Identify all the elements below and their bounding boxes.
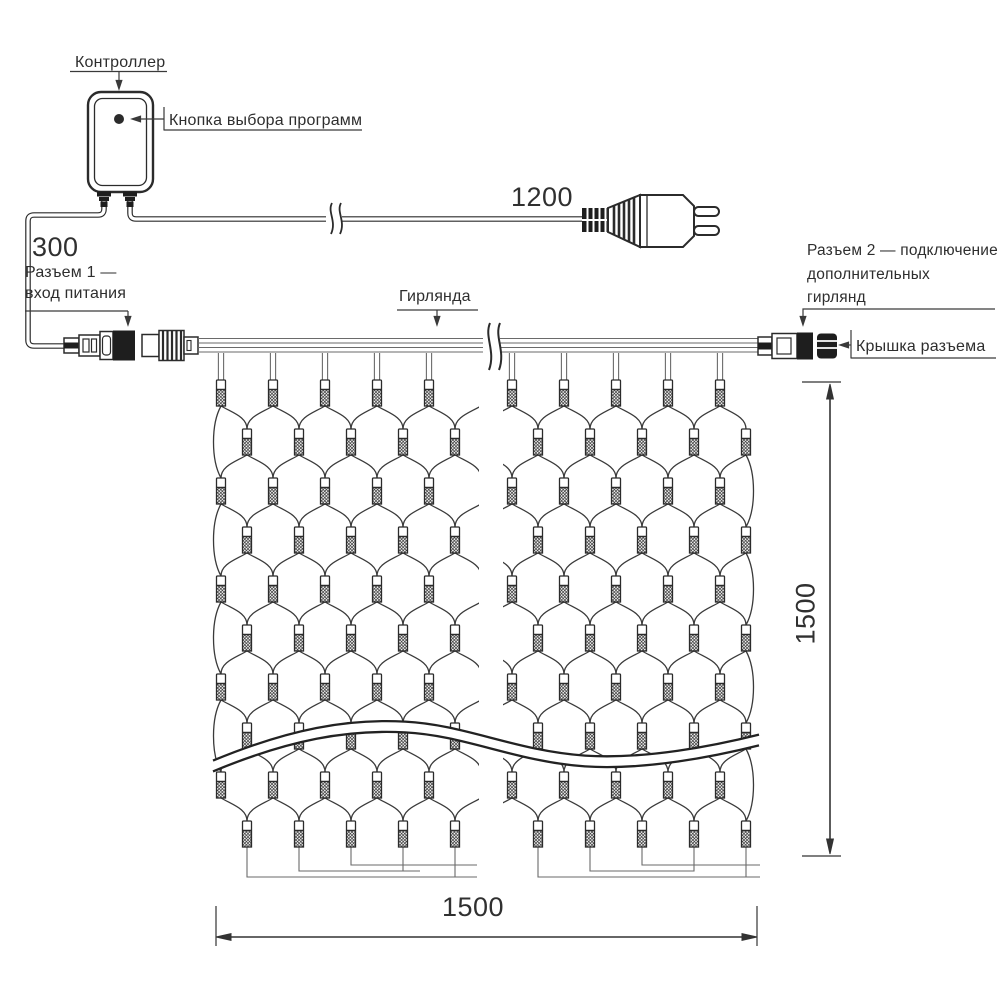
led-node [451, 429, 460, 455]
led-node [321, 576, 330, 602]
led-node [508, 380, 517, 406]
led-node [243, 429, 252, 455]
arrow-down-icon [800, 317, 806, 326]
plug-pin-top [694, 207, 719, 216]
led-node [269, 576, 278, 602]
led-node [742, 429, 751, 455]
power-plug [582, 195, 719, 247]
led-node [243, 821, 252, 847]
led-node [321, 772, 330, 798]
plug-pin-bottom [694, 226, 719, 235]
led-node [269, 380, 278, 406]
led-node [243, 625, 252, 651]
connector-cap-label: Крышка разъема [856, 336, 985, 357]
program-button-dot[interactable] [114, 114, 124, 124]
led-node [399, 821, 408, 847]
led-node [347, 527, 356, 553]
led-node [508, 576, 517, 602]
led-node [508, 772, 517, 798]
led-node [425, 576, 434, 602]
led-node [373, 772, 382, 798]
led-node [373, 380, 382, 406]
led-node [399, 527, 408, 553]
led-node [534, 527, 543, 553]
connector1-label: Разъем 1 — вход питания [25, 262, 126, 304]
garland-leader [397, 310, 478, 325]
controller-leader [70, 72, 167, 90]
led-node [425, 380, 434, 406]
controller-cable-glands [97, 192, 137, 208]
led-node [269, 772, 278, 798]
led-node [295, 527, 304, 553]
connector-1-thread [113, 331, 135, 361]
led-node [612, 772, 621, 798]
led-node [664, 478, 673, 504]
program-button-label: Кнопка выбора программ [169, 110, 362, 131]
led-node [534, 429, 543, 455]
led-node [664, 380, 673, 406]
connector2-label: Разъем 2 — подключение дополнительных ги… [807, 239, 998, 310]
led-node [269, 674, 278, 700]
garland-diagram: Контроллер Кнопка выбора программ 1200 3… [0, 0, 1000, 1000]
garland-cable-break-icon [483, 323, 501, 370]
led-node [451, 821, 460, 847]
connector-2 [758, 333, 837, 360]
led-node [451, 625, 460, 651]
led-node [586, 821, 595, 847]
led-node [638, 723, 647, 749]
connector-1 [64, 331, 135, 361]
led-node [638, 527, 647, 553]
led-node [425, 772, 434, 798]
led-node [690, 429, 699, 455]
led-node [399, 429, 408, 455]
led-node [690, 821, 699, 847]
led-node [217, 380, 226, 406]
controller [88, 92, 153, 207]
led-node [742, 527, 751, 553]
led-node [217, 772, 226, 798]
led-node [321, 478, 330, 504]
led-node [560, 772, 569, 798]
led-node [716, 478, 725, 504]
led-node [586, 625, 595, 651]
led-node [534, 625, 543, 651]
led-node [560, 576, 569, 602]
led-node [243, 527, 252, 553]
led-node [321, 674, 330, 700]
arrow-left-icon [840, 342, 849, 348]
led-node [425, 478, 434, 504]
arrow-down-icon [116, 81, 122, 90]
arrow-down-icon [434, 317, 440, 326]
led-node [638, 821, 647, 847]
led-node [373, 478, 382, 504]
connector-2-thread [797, 333, 813, 360]
led-node [690, 723, 699, 749]
led-node [716, 772, 725, 798]
led-node [716, 380, 725, 406]
garland-label: Гирлянда [399, 286, 471, 307]
led-node [586, 527, 595, 553]
led-node [716, 576, 725, 602]
led-node [612, 576, 621, 602]
led-node [560, 380, 569, 406]
led-node [451, 527, 460, 553]
led-node [534, 723, 543, 749]
led-node [347, 821, 356, 847]
net-height-dimension: 1500 [791, 554, 822, 674]
led-node [295, 429, 304, 455]
led-node [664, 576, 673, 602]
led-node [425, 674, 434, 700]
led-node [560, 478, 569, 504]
connector-cap[interactable] [817, 334, 837, 359]
led-node [269, 478, 278, 504]
garland-net-left [214, 353, 482, 877]
led-node [534, 821, 543, 847]
power-cord-length-label: 1200 [511, 182, 573, 213]
led-node [373, 674, 382, 700]
led-node [664, 772, 673, 798]
arrow-up-icon [827, 384, 834, 399]
net-width-dimension: 1500 [403, 892, 543, 923]
connector1-leader [25, 311, 131, 325]
led-node [612, 478, 621, 504]
led-node [638, 429, 647, 455]
garland-net-right [486, 353, 760, 877]
connector-1-mate [142, 331, 198, 361]
led-node [664, 674, 673, 700]
led-node [321, 380, 330, 406]
led-node [742, 821, 751, 847]
connector2-leader [800, 309, 995, 325]
led-node [243, 723, 252, 749]
led-node [217, 674, 226, 700]
input-cord-length-label: 300 [32, 232, 79, 263]
led-node [690, 625, 699, 651]
arrow-left-icon [216, 934, 231, 941]
led-node [217, 576, 226, 602]
led-node [347, 625, 356, 651]
led-node [716, 674, 725, 700]
led-node [347, 429, 356, 455]
led-node [690, 527, 699, 553]
power-cable-break-icon [326, 203, 342, 234]
led-node [295, 625, 304, 651]
led-node [373, 576, 382, 602]
arrow-down-icon [125, 317, 131, 326]
led-node [586, 723, 595, 749]
arrow-down-icon [827, 839, 834, 854]
led-node [399, 625, 408, 651]
arrow-right-icon [742, 934, 757, 941]
plug-strain-relief [582, 208, 608, 232]
garland-cable [198, 339, 758, 353]
led-node [508, 674, 517, 700]
controller-label: Контроллер [75, 52, 165, 73]
led-node [508, 478, 517, 504]
led-node [586, 429, 595, 455]
led-node [638, 625, 647, 651]
led-node [742, 625, 751, 651]
led-node [295, 821, 304, 847]
led-node [612, 674, 621, 700]
led-node [560, 674, 569, 700]
led-node [217, 478, 226, 504]
led-node [612, 380, 621, 406]
diagram-canvas [0, 0, 1000, 1000]
